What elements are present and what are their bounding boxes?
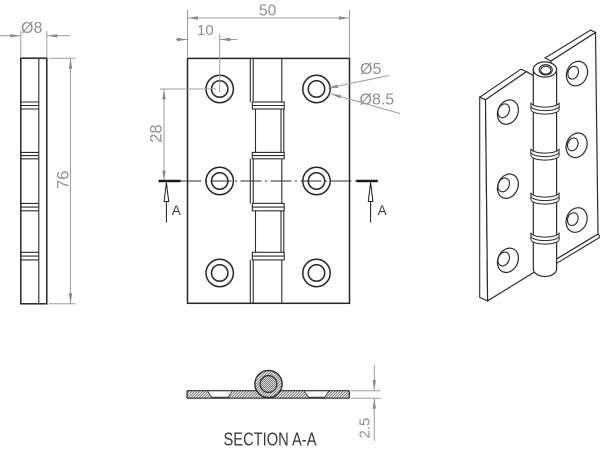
svg-text:Ø8.5: Ø8.5	[360, 92, 395, 109]
svg-text:SECTION A-A: SECTION A-A	[224, 430, 317, 450]
svg-text:28: 28	[148, 124, 166, 142]
svg-text:Ø5: Ø5	[360, 61, 381, 78]
svg-text:2.5: 2.5	[356, 418, 373, 439]
svg-text:50: 50	[259, 2, 277, 19]
svg-text:10: 10	[197, 22, 214, 39]
svg-text:76: 76	[54, 171, 72, 189]
svg-text:Ø8: Ø8	[21, 20, 42, 37]
svg-text:A: A	[378, 203, 387, 218]
svg-text:A: A	[172, 203, 181, 218]
